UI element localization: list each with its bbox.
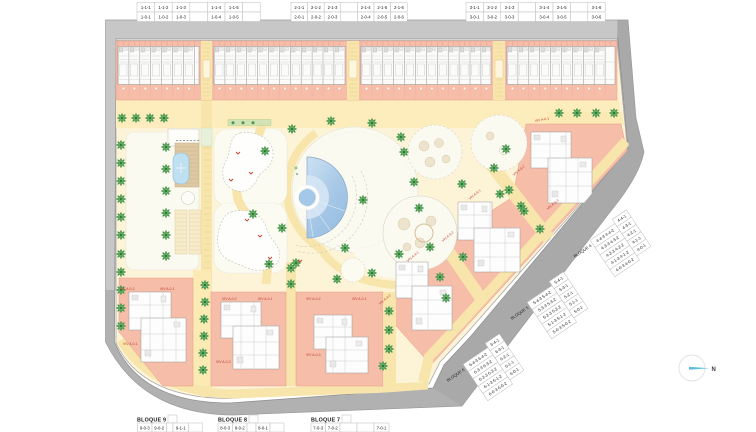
svg-text:2-1-3: 2-1-3 bbox=[328, 5, 338, 10]
svg-text:VIV A-0-1: VIV A-0-1 bbox=[352, 297, 367, 301]
svg-text:3-1-1: 3-1-1 bbox=[470, 5, 480, 10]
svg-text:3-0-4: 3-0-4 bbox=[539, 15, 549, 20]
svg-text:2-1-6: 2-1-6 bbox=[394, 5, 404, 10]
svg-text:2-0-1: 2-0-1 bbox=[294, 15, 304, 20]
svg-text:1-0-5: 1-0-5 bbox=[229, 15, 239, 20]
svg-text:2-0-5: 2-0-5 bbox=[377, 15, 387, 20]
svg-text:2-1-4: 2-1-4 bbox=[361, 5, 371, 10]
svg-text:3-1-5: 3-1-5 bbox=[557, 5, 567, 10]
svg-text:VIV A-0-1: VIV A-0-1 bbox=[258, 297, 273, 301]
svg-text:3-1-2: 3-1-2 bbox=[487, 5, 497, 10]
svg-text:VIV A-0-2: VIV A-0-2 bbox=[306, 297, 321, 301]
svg-text:VIV A-0-2: VIV A-0-2 bbox=[222, 297, 237, 301]
svg-text:7-0-2: 7-0-2 bbox=[328, 426, 338, 431]
svg-text:1-1-5: 1-1-5 bbox=[229, 5, 239, 10]
svg-text:VIV A-0-1: VIV A-0-1 bbox=[160, 287, 175, 291]
svg-text:9-0-2: 9-0-2 bbox=[154, 426, 164, 431]
svg-text:2-0-6: 2-0-6 bbox=[394, 15, 404, 20]
svg-text:3-1-3: 3-1-3 bbox=[505, 5, 515, 10]
svg-text:1-0-1: 1-0-1 bbox=[141, 15, 151, 20]
svg-text:3-1-4: 3-1-4 bbox=[539, 5, 549, 10]
svg-text:3-0-5: 3-0-5 bbox=[557, 15, 567, 20]
svg-text:7-0-1: 7-0-1 bbox=[377, 426, 387, 431]
svg-text:1-1-1: 1-1-1 bbox=[141, 5, 151, 10]
svg-text:BLOQUE 9: BLOQUE 9 bbox=[137, 418, 166, 424]
svg-text:N: N bbox=[712, 367, 716, 373]
svg-text:1-1-3: 1-1-3 bbox=[176, 5, 186, 10]
svg-text:7-0-3: 7-0-3 bbox=[313, 426, 323, 431]
svg-text:8-0-1: 8-0-1 bbox=[258, 426, 268, 431]
svg-text:1-0-4: 1-0-4 bbox=[211, 15, 221, 20]
svg-text:2-1-5: 2-1-5 bbox=[377, 5, 387, 10]
svg-text:1-1-4: 1-1-4 bbox=[211, 5, 221, 10]
svg-text:VIV A-0-1: VIV A-0-1 bbox=[123, 342, 138, 346]
svg-text:1-1-2: 1-1-2 bbox=[159, 5, 169, 10]
svg-text:3-0-2: 3-0-2 bbox=[487, 15, 497, 20]
svg-text:2-0-3: 2-0-3 bbox=[328, 15, 338, 20]
svg-text:3-0-1: 3-0-1 bbox=[470, 15, 480, 20]
svg-text:BLOQUE 8: BLOQUE 8 bbox=[218, 418, 247, 424]
svg-text:3-0-6: 3-0-6 bbox=[592, 15, 602, 20]
svg-text:VIV A-0-3: VIV A-0-3 bbox=[216, 360, 231, 364]
svg-text:9-0-3: 9-0-3 bbox=[140, 426, 150, 431]
svg-text:2-0-4: 2-0-4 bbox=[361, 15, 371, 20]
svg-text:3-0-3: 3-0-3 bbox=[505, 15, 515, 20]
svg-text:8-0-3: 8-0-3 bbox=[220, 426, 230, 431]
svg-text:2-1-1: 2-1-1 bbox=[294, 5, 304, 10]
svg-text:VIV A-0-2: VIV A-0-2 bbox=[120, 287, 135, 291]
svg-text:3-1-6: 3-1-6 bbox=[592, 5, 602, 10]
svg-text:9-1-1: 9-1-1 bbox=[176, 426, 186, 431]
svg-text:2-0-2: 2-0-2 bbox=[311, 15, 321, 20]
svg-text:8-0-2: 8-0-2 bbox=[235, 426, 245, 431]
svg-text:2-1-2: 2-1-2 bbox=[311, 5, 321, 10]
svg-text:VIV A-0-3: VIV A-0-3 bbox=[306, 353, 321, 357]
svg-text:1-0-3: 1-0-3 bbox=[176, 15, 186, 20]
svg-text:BLOQUE 7: BLOQUE 7 bbox=[311, 418, 340, 424]
svg-text:1-0-2: 1-0-2 bbox=[159, 15, 169, 20]
